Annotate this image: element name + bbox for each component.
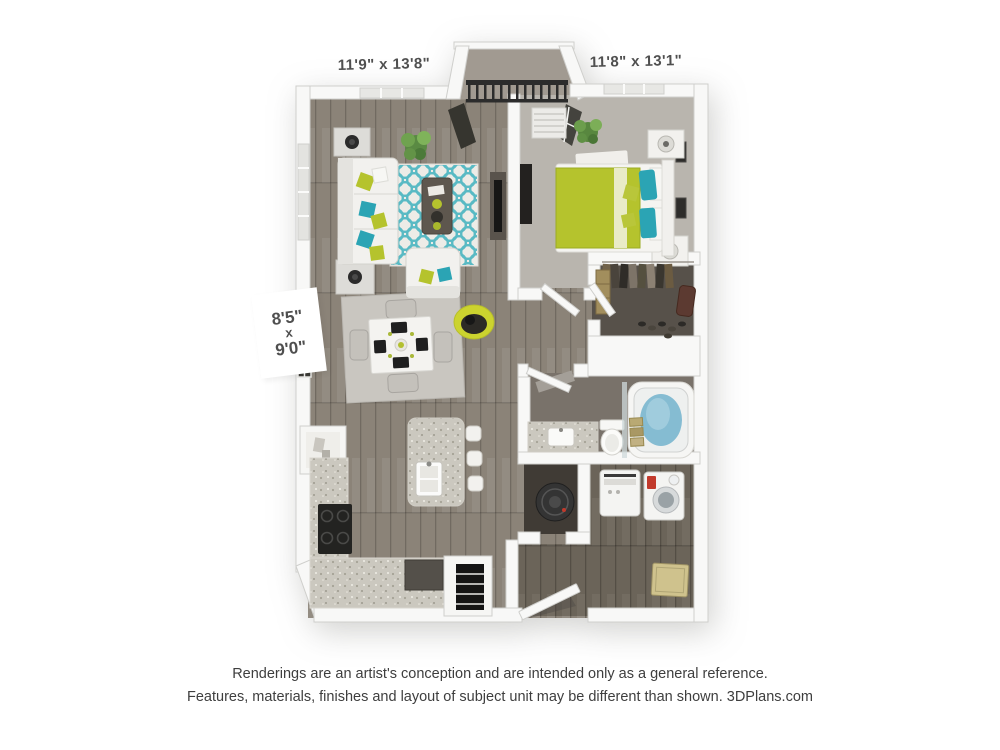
dining-nook-dimensions: 8'5" x 9'0" [251, 287, 327, 378]
pantry [444, 556, 492, 616]
dining-nook-depth: 9'0" [274, 338, 307, 359]
potted-plant-bedroom [574, 119, 602, 144]
lime-comforter [556, 168, 640, 248]
glass-panel [622, 382, 627, 458]
dining-chair-top [386, 299, 417, 319]
window-living-left [298, 144, 309, 240]
dining-chair-left [350, 330, 368, 360]
teal-pillow-top [638, 169, 657, 201]
bedroom-louver-unit [532, 108, 566, 138]
pet-bed [454, 305, 494, 339]
coffee-table [422, 178, 452, 234]
exterior-wall-bottom-right [588, 608, 702, 622]
wall-whcloset-south-b [566, 532, 590, 544]
bar-stools [466, 426, 483, 491]
wall-kitchen-entry-divider [506, 540, 518, 608]
teal-pillow-bottom [639, 207, 657, 238]
disclaimer-line1: Renderings are an artist's conception an… [0, 663, 1000, 686]
dining-chair-right [434, 332, 452, 362]
wall-whcloset-south-a [518, 532, 540, 544]
wall-art-bottom [676, 198, 686, 218]
sheet-fold [614, 168, 627, 248]
floorplan-rendering [270, 18, 730, 648]
bedroom-dresser-tv [520, 164, 532, 224]
vanity [528, 422, 598, 452]
tv-living [490, 172, 506, 240]
dining-chair-bottom [388, 373, 419, 393]
wall-living-bedroom-divider [508, 94, 520, 300]
armchair [406, 248, 460, 298]
doormat [651, 563, 689, 597]
floorplan-page: 11'9" x 13'8" 11'8" x 13'1" 8'5" x 9'0" … [0, 0, 1000, 750]
window-bedroom-top [604, 84, 664, 94]
washer [600, 470, 640, 516]
cooktop [318, 504, 352, 554]
wall-bath-north-b [574, 364, 588, 377]
nightstand-top [648, 130, 684, 158]
lime-accent-pillow-2 [621, 213, 636, 228]
water-heater [536, 483, 574, 521]
closet-ottoman [676, 285, 696, 317]
bed [556, 160, 674, 256]
wall-closet-south [588, 336, 700, 376]
toilet [600, 420, 624, 455]
dryer [644, 472, 684, 520]
kitchen-island [408, 418, 464, 506]
kitchen-appliance [405, 560, 443, 590]
island-sink [416, 462, 442, 497]
headboard [662, 160, 674, 256]
disclaimer-line2: Features, materials, finishes and layout… [0, 686, 1000, 709]
detergent-bottle [647, 476, 656, 489]
wall-bath-north-a [518, 364, 528, 377]
towels [629, 418, 643, 447]
wall-bedroom-south-a [518, 288, 542, 300]
balcony-front-wall [454, 42, 574, 49]
disclaimer: Renderings are an artist's conception an… [0, 663, 1000, 709]
window-living-top [360, 88, 424, 98]
